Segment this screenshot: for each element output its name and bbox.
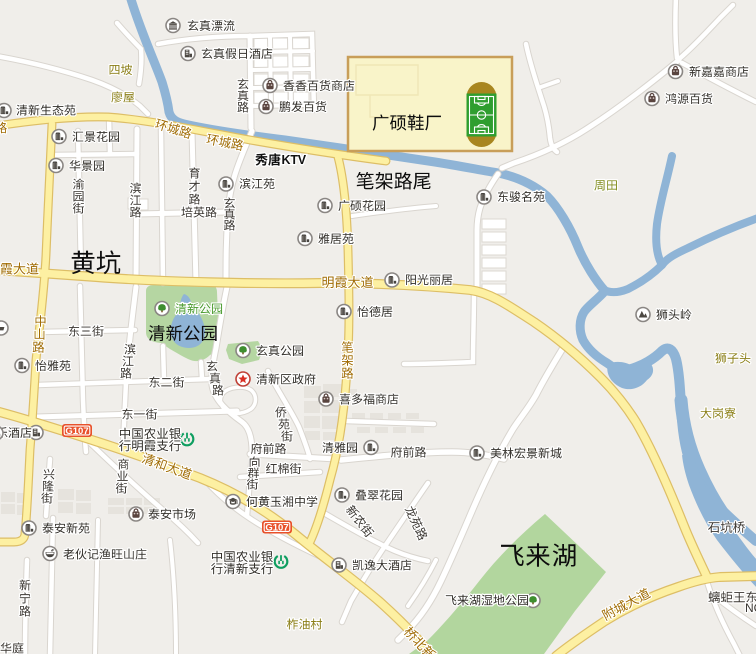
- svg-text:G107: G107: [65, 426, 88, 437]
- svg-text:NC: NC: [745, 601, 756, 615]
- svg-text:KTV: KTV: [282, 153, 307, 167]
- svg-text:G107: G107: [265, 523, 288, 534]
